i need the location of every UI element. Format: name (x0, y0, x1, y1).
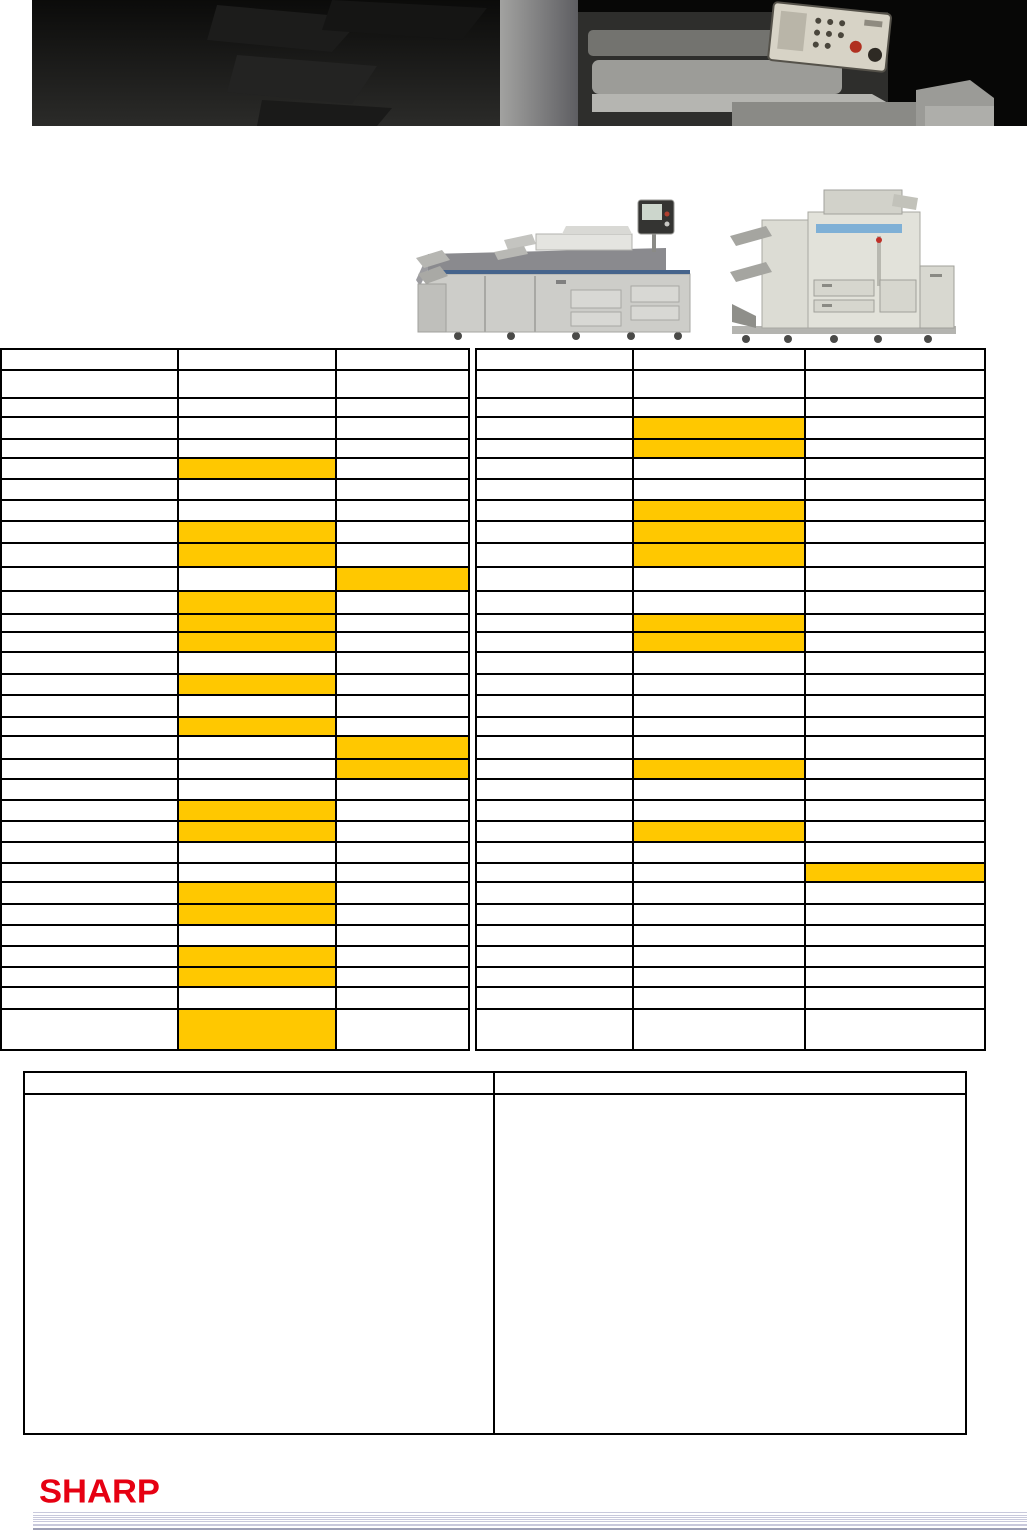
spec-table-cell (2, 480, 179, 499)
spec-table-cell (337, 883, 470, 903)
spec-table-cell-highlighted (634, 633, 806, 651)
spec-table-cell (477, 371, 634, 397)
spec-table-cell (477, 968, 634, 986)
notes-body-cell-left (25, 1095, 495, 1433)
spec-table-cell (806, 653, 986, 673)
spec-table-cell (337, 696, 470, 716)
spec-table-cell (634, 1010, 806, 1049)
spec-table-cell (806, 822, 986, 841)
spec-table-cell (337, 947, 470, 966)
spec-table-cell (179, 988, 337, 1008)
spec-table-cell (2, 440, 179, 457)
spec-table-left (0, 348, 470, 1051)
spec-table-cell (337, 864, 470, 881)
spec-table-cell (179, 371, 337, 397)
spec-table-row (2, 350, 470, 371)
notes-table (23, 1071, 967, 1435)
spec-table-cell (477, 801, 634, 820)
spec-table-row (477, 822, 986, 843)
footer-stripe-light (33, 1524, 1027, 1526)
spec-table-row (2, 822, 470, 843)
spec-table-cell (806, 399, 986, 416)
spec-table-cell (806, 568, 986, 590)
spec-table-cell (806, 883, 986, 903)
spec-table-cell (477, 843, 634, 862)
notes-header-cell-left (25, 1073, 495, 1093)
spec-table-cell (2, 675, 179, 694)
spec-table-cell (477, 926, 634, 945)
spec-table-cell (2, 968, 179, 986)
spec-table-row (477, 675, 986, 696)
spec-table-cell (806, 592, 986, 613)
spec-table-cell (477, 905, 634, 924)
spec-table-cell (477, 544, 634, 566)
spec-table-cell (806, 675, 986, 694)
spec-table-cell (2, 780, 179, 799)
spec-table-row (2, 988, 470, 1010)
spec-table-row (477, 480, 986, 501)
footer-stripe-light (33, 1521, 1027, 1522)
spec-table-cell-highlighted (634, 822, 806, 841)
spec-table-cell (2, 883, 179, 903)
spec-table-cell (2, 501, 179, 520)
spec-table-cell (634, 864, 806, 881)
spec-table-cell (179, 418, 337, 438)
spec-table-cell (477, 522, 634, 542)
spec-table-cell (337, 399, 470, 416)
spec-table-cell-highlighted (337, 568, 470, 590)
spec-table-cell (634, 399, 806, 416)
notes-body-cell-right (495, 1095, 965, 1433)
spec-table-cell (337, 480, 470, 499)
spec-table-cell (477, 947, 634, 966)
spec-table-cell (806, 780, 986, 799)
spec-table-right (475, 348, 986, 1051)
spec-table-cell (477, 675, 634, 694)
spec-table-row (2, 968, 470, 988)
spec-table-row (477, 926, 986, 947)
spec-table-cell (337, 633, 470, 651)
spec-table-row (477, 633, 986, 653)
spec-table-cell (2, 522, 179, 542)
spec-table-cell-highlighted (634, 501, 806, 520)
spec-table-cell (634, 480, 806, 499)
spec-table-cell (477, 568, 634, 590)
spec-table-cell (179, 653, 337, 673)
spec-table-cell-highlighted (806, 864, 986, 881)
notes-header-cell-right (495, 1073, 965, 1093)
spec-table-cell-highlighted (634, 522, 806, 542)
spec-table-cell (337, 440, 470, 457)
spec-table-row (2, 418, 470, 440)
spec-table-cell (337, 1010, 470, 1049)
spec-table-cell (337, 544, 470, 566)
spec-table-cell (477, 822, 634, 841)
notes-table-body-row (25, 1095, 965, 1433)
spec-table-cell (806, 501, 986, 520)
spec-table-cell (2, 653, 179, 673)
spec-table-cell (337, 459, 470, 478)
footer-stripe-light (33, 1515, 1027, 1516)
spec-table-cell (337, 615, 470, 631)
spec-table-row (477, 440, 986, 459)
spec-table-row (2, 568, 470, 592)
spec-table-cell (634, 675, 806, 694)
production-printer-photo (416, 194, 712, 342)
spec-table-row (2, 371, 470, 399)
spec-table-cell (634, 718, 806, 735)
spec-table-cell (634, 926, 806, 945)
spec-table-row (2, 926, 470, 947)
spec-table-cell (634, 843, 806, 862)
spec-table-row (477, 696, 986, 718)
spec-table-cell-highlighted (634, 440, 806, 457)
spec-table-cell-highlighted (634, 615, 806, 631)
spec-table-cell (477, 633, 634, 651)
spec-table-cell (634, 653, 806, 673)
spec-table-row (2, 864, 470, 883)
spec-table-cell-highlighted (179, 822, 337, 841)
spec-table-row (2, 843, 470, 864)
spec-table-row (2, 947, 470, 968)
footer-stripe-light (33, 1519, 1027, 1520)
spec-table-row (2, 905, 470, 926)
spec-table-row (477, 615, 986, 633)
spec-table-cell-highlighted (179, 968, 337, 986)
spec-table-cell (2, 418, 179, 438)
spec-table-cell-highlighted (179, 675, 337, 694)
spec-table-cell (2, 822, 179, 841)
spec-table-cell (337, 653, 470, 673)
spec-table-row (477, 737, 986, 760)
spec-table-cell (634, 371, 806, 397)
spec-table-row (2, 737, 470, 760)
digital-copier-with-finisher-photo (726, 176, 962, 346)
spec-table-row (477, 568, 986, 592)
spec-table-cell (806, 615, 986, 631)
spec-table-cell-highlighted (179, 905, 337, 924)
spec-table-cell (179, 926, 337, 945)
spec-table-cell (477, 780, 634, 799)
spec-table-cell (2, 947, 179, 966)
spec-table-row (477, 988, 986, 1010)
notes-table-header-row (25, 1073, 965, 1095)
spec-table-row (2, 633, 470, 653)
spec-table-cell (477, 480, 634, 499)
spec-table-cell (2, 350, 179, 369)
office-copier-photo (726, 176, 962, 346)
spec-table-cell (179, 864, 337, 881)
spec-table-cell (477, 418, 634, 438)
spec-table-row (2, 615, 470, 633)
spec-table-cell-highlighted (179, 718, 337, 735)
spec-table-cell (806, 843, 986, 862)
spec-table-cell (477, 592, 634, 613)
spec-table-row (477, 864, 986, 883)
spec-table-cell (2, 864, 179, 881)
spec-table-cell (477, 864, 634, 881)
spec-table-cell (477, 737, 634, 758)
spec-table-cell (806, 905, 986, 924)
spec-table-cell-highlighted (179, 615, 337, 631)
spec-table-row (477, 592, 986, 615)
spec-table-cell (2, 905, 179, 924)
spec-table-cell (634, 780, 806, 799)
spec-table-row (477, 801, 986, 822)
spec-table-cell-highlighted (634, 760, 806, 778)
sharp-logo: SHARP (39, 1472, 160, 1511)
spec-table-cell (2, 592, 179, 613)
spec-table-cell (2, 801, 179, 820)
spec-table-row (2, 696, 470, 718)
spec-table-row (477, 459, 986, 480)
spec-table-cell (179, 501, 337, 520)
spec-table-cell-highlighted (634, 418, 806, 438)
spec-table-row (477, 522, 986, 544)
spec-table-cell (477, 760, 634, 778)
spec-table-cell-highlighted (179, 633, 337, 651)
spec-table-cell (806, 522, 986, 542)
spec-table-row (477, 905, 986, 926)
spec-table-cell (179, 399, 337, 416)
spec-table-row (477, 653, 986, 675)
spec-table-cell-highlighted (179, 522, 337, 542)
spec-table-cell-highlighted (179, 947, 337, 966)
spec-table-cell (806, 760, 986, 778)
spec-table-cell (337, 522, 470, 542)
spec-table-cell (806, 801, 986, 820)
spec-table-cell (806, 1010, 986, 1049)
brochure-page: SHARP (0, 0, 1027, 1532)
spec-table-cell (179, 780, 337, 799)
spec-table-cell (337, 988, 470, 1008)
spec-table-cell (337, 822, 470, 841)
spec-table-cell (477, 440, 634, 457)
spec-table-row (477, 544, 986, 568)
spec-table-cell (634, 737, 806, 758)
spec-table-row (477, 843, 986, 864)
spec-table-cell (2, 926, 179, 945)
spec-table-cell (477, 350, 634, 369)
spec-table-cell-highlighted (179, 459, 337, 478)
production-printing-system-photo (416, 194, 712, 342)
spec-table-cell (2, 737, 179, 758)
footer-stripe-light (33, 1517, 1027, 1518)
spec-table-cell (337, 968, 470, 986)
spec-table-row (477, 1010, 986, 1051)
spec-table-cell (477, 399, 634, 416)
spec-table-row (2, 801, 470, 822)
spec-table-cell-highlighted (179, 883, 337, 903)
spec-table-cell (634, 350, 806, 369)
spec-table-row (477, 947, 986, 968)
spec-table-cell-highlighted (179, 801, 337, 820)
spec-table-row (2, 399, 470, 418)
spec-table-row (2, 760, 470, 780)
spec-table-row (477, 968, 986, 988)
spec-table-cell (2, 760, 179, 778)
spec-table-cell (2, 696, 179, 716)
spec-table-cell (2, 615, 179, 631)
spec-table-cell (806, 633, 986, 651)
spec-table-cell (477, 653, 634, 673)
spec-table-cell (2, 544, 179, 566)
spec-table-cell (2, 399, 179, 416)
footer-stripe-dark (33, 1528, 1027, 1530)
spec-table-row (477, 418, 986, 440)
spec-table-cell (337, 801, 470, 820)
spec-table-cell (337, 905, 470, 924)
spec-table-row (2, 501, 470, 522)
spec-table-row (2, 1010, 470, 1051)
spec-table-cell-highlighted (337, 737, 470, 758)
spec-table-row (2, 718, 470, 737)
spec-table-cell (337, 926, 470, 945)
spec-table-cell (634, 568, 806, 590)
spec-table-cell (179, 350, 337, 369)
spec-table-cell (477, 615, 634, 631)
spec-table-cell (179, 568, 337, 590)
spec-table-cell (337, 592, 470, 613)
spec-table-cell (634, 592, 806, 613)
spec-table-cell (337, 675, 470, 694)
spec-table-cell-highlighted (337, 760, 470, 778)
spec-table-row (477, 350, 986, 371)
spec-table-cell (2, 568, 179, 590)
spec-table-row (2, 440, 470, 459)
spec-table-row (477, 718, 986, 737)
spec-table-cell (2, 633, 179, 651)
spec-table-cell (337, 501, 470, 520)
spec-table-cell (477, 718, 634, 735)
spec-table-cell (477, 883, 634, 903)
spec-table-cell (806, 968, 986, 986)
hero-banner-image (32, 0, 1027, 126)
spec-table-cell (337, 718, 470, 735)
spec-table-cell (477, 1010, 634, 1049)
spec-table-cell (477, 988, 634, 1008)
spec-table-cell (806, 440, 986, 457)
spec-table-cell (477, 459, 634, 478)
spec-table-cell (806, 371, 986, 397)
spec-table-row (2, 653, 470, 675)
spec-table-row (2, 480, 470, 501)
spec-table-cell (2, 459, 179, 478)
spec-table-cell (337, 418, 470, 438)
spec-table-cell (2, 371, 179, 397)
spec-table-cell (179, 696, 337, 716)
spec-table-cell (337, 843, 470, 862)
spec-table-row (477, 399, 986, 418)
spec-table-cell (806, 947, 986, 966)
spec-table-cell (179, 480, 337, 499)
spec-table-cell (634, 988, 806, 1008)
spec-table-cell (806, 988, 986, 1008)
spec-table-cell (179, 843, 337, 862)
control-panel-detail (768, 2, 891, 72)
spec-table-cell (477, 501, 634, 520)
spec-table-cell (806, 544, 986, 566)
spec-table-cell (2, 988, 179, 1008)
spec-table-row (2, 522, 470, 544)
spec-table-cell-highlighted (179, 592, 337, 613)
spec-table-cell (179, 737, 337, 758)
spec-table-cell (2, 718, 179, 735)
spec-table-cell (634, 696, 806, 716)
spec-table-cell (806, 480, 986, 499)
spec-table-cell-highlighted (634, 544, 806, 566)
spec-table-cell (634, 947, 806, 966)
spec-table-cell (179, 760, 337, 778)
spec-table-row (2, 780, 470, 801)
spec-table-row (2, 459, 470, 480)
spec-table-row (477, 501, 986, 522)
spec-table-cell (806, 696, 986, 716)
spec-table-cell (337, 371, 470, 397)
spec-table-row (2, 592, 470, 615)
spec-table-cell (337, 780, 470, 799)
spec-table-cell (2, 843, 179, 862)
spec-table-cell (634, 801, 806, 820)
spec-table-cell (806, 737, 986, 758)
spec-table-cell (634, 883, 806, 903)
spec-table-row (477, 371, 986, 399)
spec-table-cell (806, 926, 986, 945)
spec-table-cell (634, 459, 806, 478)
spec-table-row (2, 544, 470, 568)
spec-table-row (2, 883, 470, 905)
spec-table-row (477, 883, 986, 905)
spec-table-cell (337, 350, 470, 369)
spec-table-row (2, 675, 470, 696)
spec-table-cell (477, 696, 634, 716)
spec-table-cell (806, 350, 986, 369)
spec-table-row (477, 780, 986, 801)
spec-table-row (477, 760, 986, 780)
spec-table-cell (806, 459, 986, 478)
dark-showroom-copiers-photo (32, 0, 1027, 126)
spec-table-cell (806, 418, 986, 438)
spec-table-cell-highlighted (179, 544, 337, 566)
spec-table-cell-highlighted (179, 1010, 337, 1049)
footer-stripe-light (33, 1512, 1027, 1513)
spec-table-cell (634, 905, 806, 924)
spec-table-cell (634, 968, 806, 986)
spec-table-cell (179, 440, 337, 457)
spec-table-cell (2, 1010, 179, 1049)
spec-table-cell (806, 718, 986, 735)
